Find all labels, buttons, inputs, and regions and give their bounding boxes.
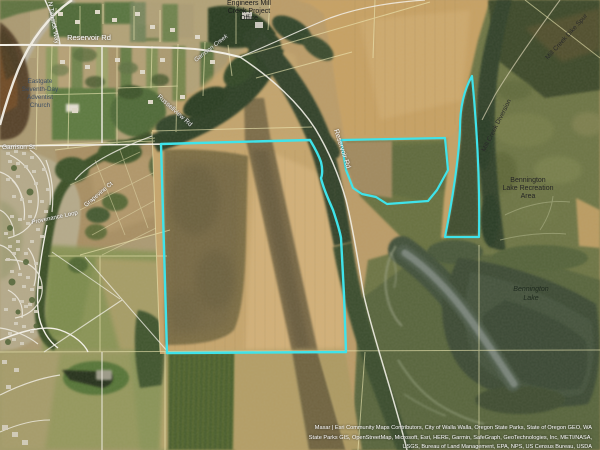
svg-text:Adventist: Adventist <box>27 94 53 101</box>
svg-text:Church: Church <box>30 102 51 109</box>
svg-text:Lake: Lake <box>523 295 538 302</box>
svg-text:Seventh-Day: Seventh-Day <box>22 86 59 93</box>
svg-text:Garrison St: Garrison St <box>2 144 35 151</box>
svg-text:Maxar | Esri Community Maps Co: Maxar | Esri Community Maps Contributors… <box>315 425 592 431</box>
svg-text:Creek Project: Creek Project <box>228 8 270 15</box>
svg-text:Reservoir Rd: Reservoir Rd <box>67 33 111 42</box>
svg-text:Lake Recreation: Lake Recreation <box>503 185 554 192</box>
svg-text:USGS, Bureau of Land Managemen: USGS, Bureau of Land Management, EPA, NP… <box>402 444 592 450</box>
svg-text:Engineers Mill: Engineers Mill <box>227 0 271 7</box>
svg-text:State Parks GIS, OpenStreetMap: State Parks GIS, OpenStreetMap, Microsof… <box>309 435 593 441</box>
svg-text:Bennington: Bennington <box>510 177 546 184</box>
svg-text:Area: Area <box>521 193 536 200</box>
svg-text:Eastgate: Eastgate <box>28 78 53 85</box>
svg-text:Bennington: Bennington <box>513 286 549 293</box>
svg-text:Office: Office <box>240 15 258 22</box>
